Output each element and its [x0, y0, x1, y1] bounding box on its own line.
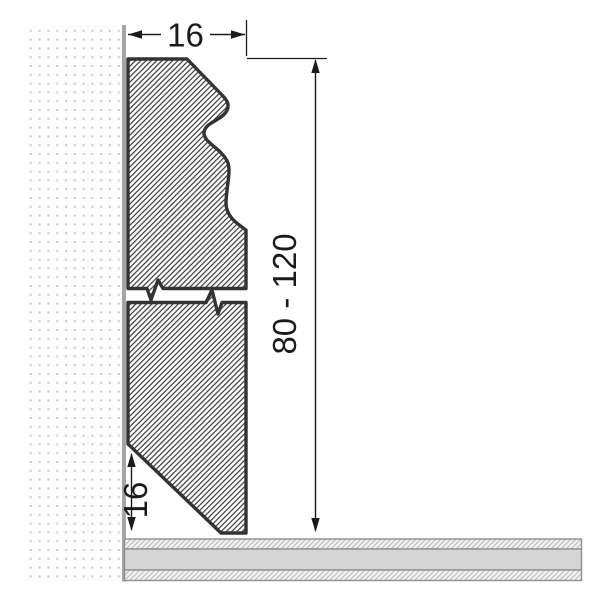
width-dimension-label: 16: [167, 17, 204, 54]
arrow-right-icon: [231, 30, 245, 39]
skirting-section-diagram: 16 80 - 120 16: [0, 0, 604, 604]
width-dimension: 16: [128, 17, 247, 57]
floor-top-layer: [125, 539, 582, 549]
technical-drawing-canvas: 16 80 - 120 16: [0, 0, 604, 604]
floor-bottom-layer: [125, 570, 582, 581]
floor-core-layer: [125, 549, 582, 570]
height-dimension-label: 80 - 120: [266, 233, 303, 354]
bevel-dimension-label: 16: [117, 482, 154, 519]
arrow-up-icon: [127, 453, 135, 467]
wall-section: [27, 25, 126, 582]
height-dimension: 80 - 120: [247, 59, 327, 533]
skirting-profile-upper: [128, 59, 246, 300]
arrow-down-icon: [311, 518, 319, 532]
wall-stipple-area: [27, 25, 122, 582]
arrow-left-icon: [128, 30, 142, 39]
floor-section: [125, 539, 582, 581]
arrow-up-icon: [311, 59, 319, 73]
